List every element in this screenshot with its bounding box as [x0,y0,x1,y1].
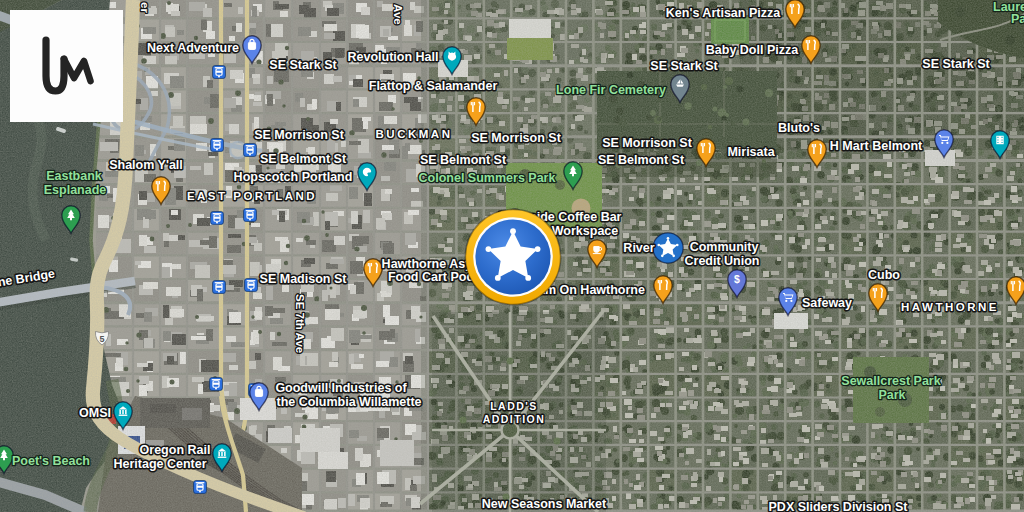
svg-text:Cubo: Cubo [868,268,900,282]
svg-text:Food Cart Pod: Food Cart Pod [388,270,474,284]
svg-text:Flattop & Salamander: Flattop & Salamander [369,79,498,93]
svg-text:$: $ [734,273,740,285]
svg-text:er: er [139,2,151,13]
svg-text:SE Belmont St: SE Belmont St [260,152,347,166]
svg-text:Community: Community [690,240,759,254]
svg-text:Bluto's: Bluto's [778,121,820,135]
svg-text:ADDITION: ADDITION [483,413,546,425]
svg-text:SE Morrison St: SE Morrison St [602,136,692,150]
svg-text:SE Morrison St: SE Morrison St [254,128,344,142]
svg-text:Sewallcrest Park: Sewallcrest Park [841,374,940,388]
svg-text:Lone Fir Cemetery: Lone Fir Cemetery [556,83,666,97]
svg-text:Poet's Beach: Poet's Beach [12,454,90,468]
svg-text:5: 5 [99,334,104,344]
svg-text:Safeway: Safeway [802,296,852,310]
svg-text:Revolution Hall: Revolution Hall [348,50,439,64]
svg-text:Next Adventure: Next Adventure [147,41,239,55]
svg-text:the Columbia Willamette: the Columbia Willamette [276,395,421,409]
svg-text:SE Belmont St: SE Belmont St [598,153,685,167]
svg-text:EAST PORTLAND: EAST PORTLAND [187,190,317,202]
svg-text:Goodwill Industries of: Goodwill Industries of [275,381,407,395]
svg-text:SE Stark St: SE Stark St [922,57,990,71]
svg-text:Ave: Ave [392,4,404,25]
svg-text:SE 7th Ave: SE 7th Ave [294,294,306,353]
svg-text:Mirisata: Mirisata [727,145,775,159]
svg-text:H Mart Belmont: H Mart Belmont [830,139,923,153]
svg-text:Shalom Y'all: Shalom Y'all [109,158,183,172]
svg-text:Park: Park [1011,12,1024,26]
svg-text:New Seasons Market: New Seasons Market [482,497,607,511]
svg-text:Oregon Rail: Oregon Rail [140,443,211,457]
svg-text:Heritage Center: Heritage Center [113,457,206,471]
svg-text:Hopscotch Portland: Hopscotch Portland [234,170,353,184]
svg-text:OMSI: OMSI [79,406,111,420]
svg-text:Eastbank: Eastbank [46,169,102,183]
svg-text:Workspace: Workspace [552,224,619,238]
svg-text:SE Belmont St: SE Belmont St [420,153,507,167]
svg-text:Park: Park [878,388,905,402]
svg-text:SE Madison St: SE Madison St [260,272,348,286]
svg-text:River: River [623,241,654,255]
svg-text:PDX Sliders Division St: PDX Sliders Division St [769,500,909,512]
svg-text:BUCKMAN: BUCKMAN [376,128,453,140]
svg-text:Esplanade: Esplanade [44,183,107,197]
svg-text:Ken's Artisan Pizza: Ken's Artisan Pizza [666,6,781,20]
svg-text:Colonel Summers Park: Colonel Summers Park [419,171,556,185]
svg-text:Credit Union: Credit Union [685,254,760,268]
svg-text:SE Stark St: SE Stark St [650,59,718,73]
svg-text:Baby Doll Pizza: Baby Doll Pizza [706,43,799,57]
svg-text:HAWTHORNE: HAWTHORNE [901,301,999,313]
svg-text:SE Stark St: SE Stark St [269,58,337,72]
svg-text:LADD'S: LADD'S [490,400,538,412]
svg-text:SE Morrison St: SE Morrison St [471,131,561,145]
